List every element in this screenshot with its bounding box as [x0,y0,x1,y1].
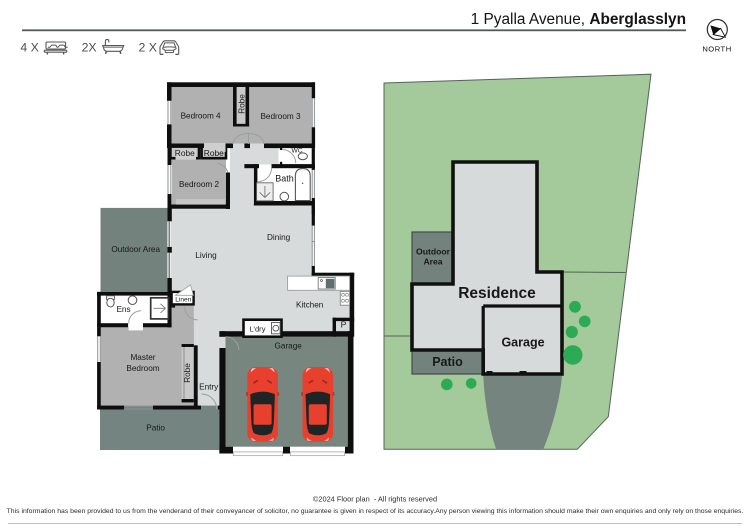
svg-text:Living: Living [195,251,217,260]
svg-text:Garage: Garage [501,336,544,350]
svg-text:Robe: Robe [183,363,192,383]
svg-text:2X: 2X [82,41,97,55]
svg-text:Robe: Robe [175,148,195,158]
svg-text:WC: WC [292,148,303,155]
svg-text:P: P [341,320,347,330]
svg-text:Kitchen: Kitchen [296,301,324,310]
svg-text:Patio: Patio [146,424,165,433]
svg-text:Patio: Patio [432,355,463,369]
svg-text:NORTH: NORTH [702,44,731,53]
svg-text:©2024 Floor plan - All rights: ©2024 Floor plan - All rights reserved [313,495,437,504]
svg-text:Outdoor Area: Outdoor Area [111,245,160,254]
svg-text:Garage: Garage [275,342,303,351]
svg-text:2 X: 2 X [139,41,157,55]
svg-text:This information has been prov: This information has been provided to us… [7,508,744,515]
svg-text:Residence: Residence [458,285,536,302]
svg-text:Robe: Robe [204,148,224,158]
svg-text:Entry: Entry [199,383,219,392]
svg-text:Dining: Dining [267,233,291,242]
svg-text:Linen: Linen [175,296,191,303]
svg-text:Ens: Ens [116,305,130,314]
svg-text:Bedroom 2: Bedroom 2 [179,180,219,189]
svg-text:Outdoor: Outdoor [416,247,451,257]
svg-text:1 Pyalla Avenue, Aberglasslyn: 1 Pyalla Avenue, Aberglasslyn [471,11,686,28]
svg-text:Bedroom 3: Bedroom 3 [260,112,300,121]
svg-text:Bath: Bath [275,174,294,184]
svg-text:L’dry: L’dry [249,325,265,334]
svg-text:Robe: Robe [238,94,247,114]
svg-text:Bedroom: Bedroom [126,364,159,373]
svg-text:Area: Area [423,257,442,267]
svg-text:Master: Master [130,353,155,362]
svg-text:Bedroom 4: Bedroom 4 [181,112,221,121]
svg-text:4 X: 4 X [20,41,38,55]
